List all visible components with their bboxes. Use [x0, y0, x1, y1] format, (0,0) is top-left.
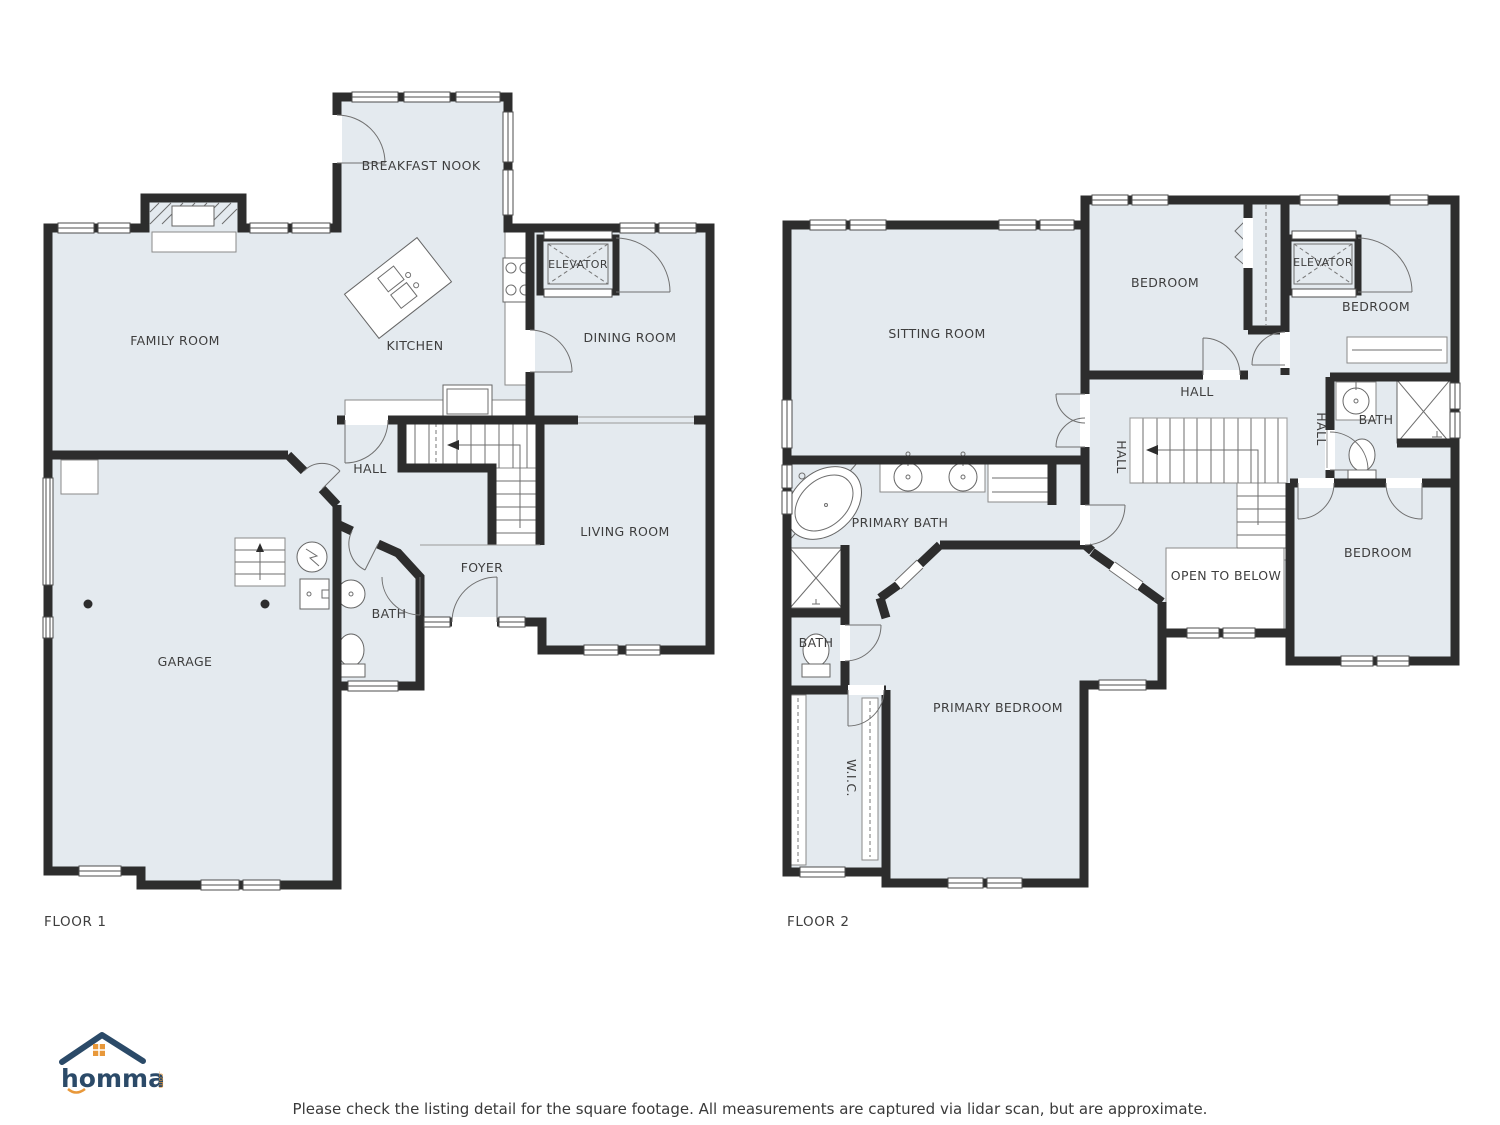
label-sitting-room: SITTING ROOM [888, 326, 985, 341]
water-heater-icon [297, 542, 327, 572]
label-hall-f2: HALL [1180, 384, 1213, 399]
house-icon [62, 1035, 143, 1062]
label-hall-west: HALL [1114, 440, 1129, 473]
bedroom-right-closet [1347, 337, 1447, 363]
label-open-to-below: OPEN TO BELOW [1171, 568, 1281, 583]
label-hall-east: HALL [1314, 412, 1329, 445]
label-elevator-f2: ELEVATOR [1293, 256, 1353, 269]
label-elevator-f1: ELEVATOR [548, 258, 608, 271]
floor1-title: FLOOR 1 [44, 914, 107, 930]
label-bath-right: BATH [1359, 412, 1394, 427]
label-primary-bath: PRIMARY BATH [852, 515, 949, 530]
label-bath-f1: BATH [372, 606, 407, 621]
label-garage: GARAGE [158, 654, 213, 669]
shower-icon [790, 548, 842, 608]
label-wic: W.I.C. [844, 759, 859, 797]
floorplan-canvas: BREAKFAST NOOK FAMILY ROOM KITCHEN ELEVA… [0, 0, 1500, 1125]
disclaimer-text: Please check the listing detail for the … [0, 1100, 1500, 1118]
label-bath-small: BATH [799, 635, 834, 650]
floor2-plan: SITTING ROOM BEDROOM ELEVATOR BEDROOM HA… [772, 195, 1460, 930]
label-living-room: LIVING ROOM [580, 524, 669, 539]
brand-suffix: .com [157, 1071, 165, 1088]
floorplan-page: BREAKFAST NOOK FAMILY ROOM KITCHEN ELEVA… [0, 0, 1500, 1125]
toilet-icon-bath-right [1348, 439, 1376, 482]
shower-icon-bath-right [1397, 380, 1450, 443]
linen-closet [988, 464, 1052, 502]
refrigerator-icon [443, 385, 492, 418]
label-dining-room: DINING ROOM [584, 330, 677, 345]
label-bedroom-top: BEDROOM [1131, 275, 1199, 290]
label-foyer: FOYER [461, 560, 504, 575]
utility-box-icon [300, 579, 329, 609]
stairs-garage [235, 538, 285, 586]
label-breakfast-nook: BREAKFAST NOOK [362, 158, 481, 173]
floor1-plan: BREAKFAST NOOK FAMILY ROOM KITCHEN ELEVA… [43, 92, 710, 930]
floor2-title: FLOOR 2 [787, 914, 850, 930]
hommati-logo: hommati .com [55, 1031, 165, 1095]
label-hall-f1: HALL [353, 461, 386, 476]
brand-text: hommati [61, 1064, 165, 1093]
open-to-below-void [1166, 548, 1284, 630]
label-primary-bedroom: PRIMARY BEDROOM [933, 700, 1063, 715]
label-family-room: FAMILY ROOM [130, 333, 220, 348]
label-bedroom-bottom: BEDROOM [1344, 545, 1412, 560]
label-bedroom-right: BEDROOM [1342, 299, 1410, 314]
label-kitchen: KITCHEN [387, 338, 444, 353]
